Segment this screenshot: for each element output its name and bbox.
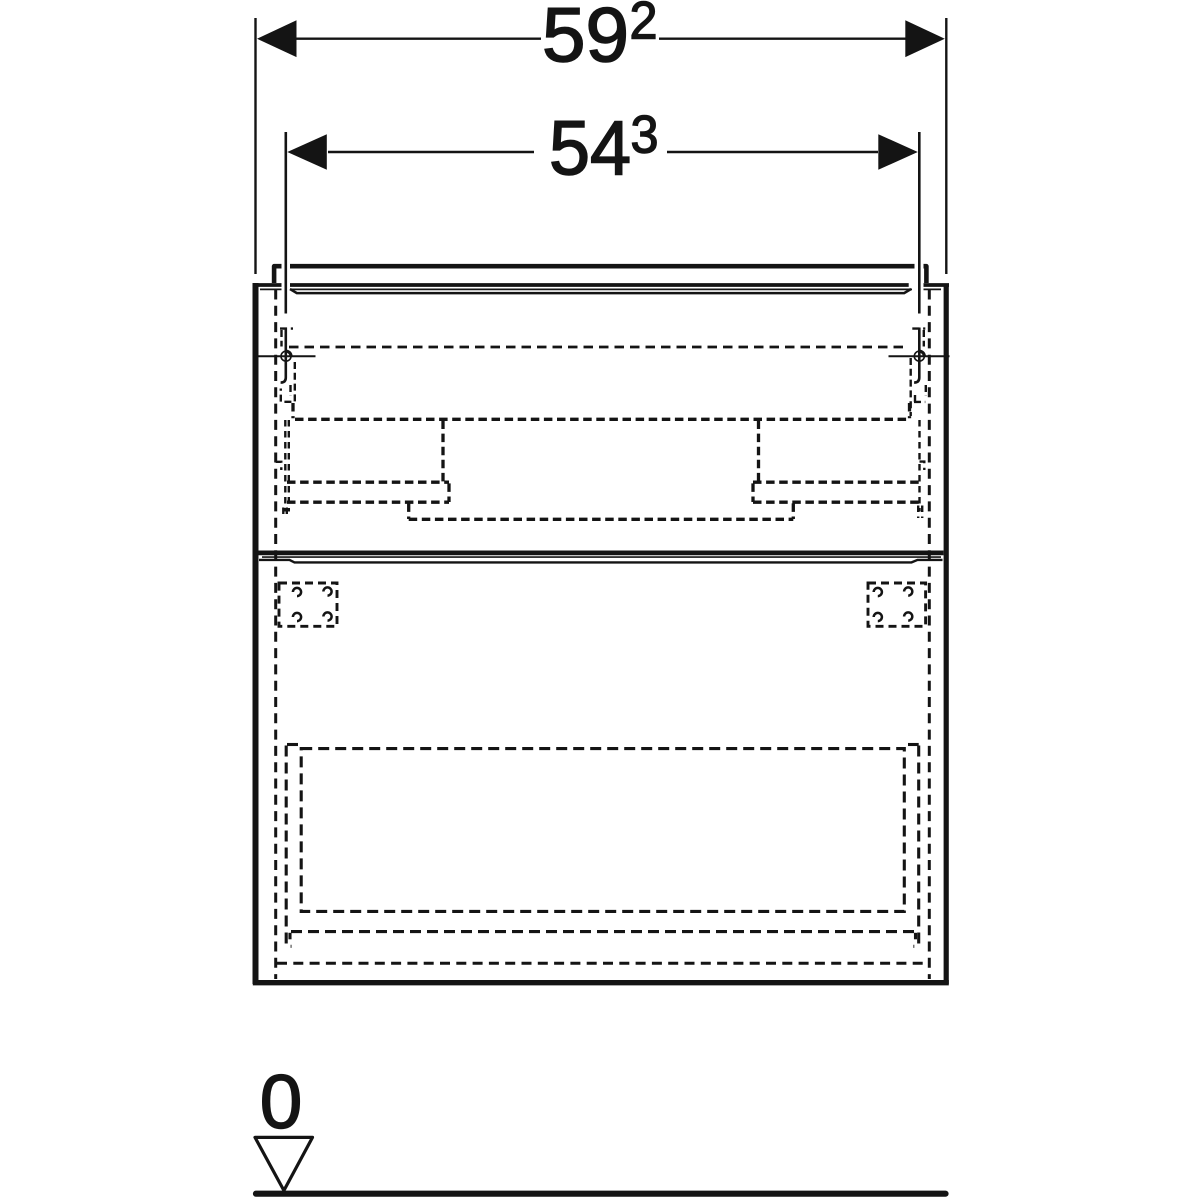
svg-text:3: 3 — [631, 106, 659, 165]
svg-text:59: 59 — [542, 0, 629, 78]
svg-text:54: 54 — [549, 105, 631, 191]
svg-text:2: 2 — [630, 0, 658, 51]
svg-text:0: 0 — [260, 1060, 303, 1145]
